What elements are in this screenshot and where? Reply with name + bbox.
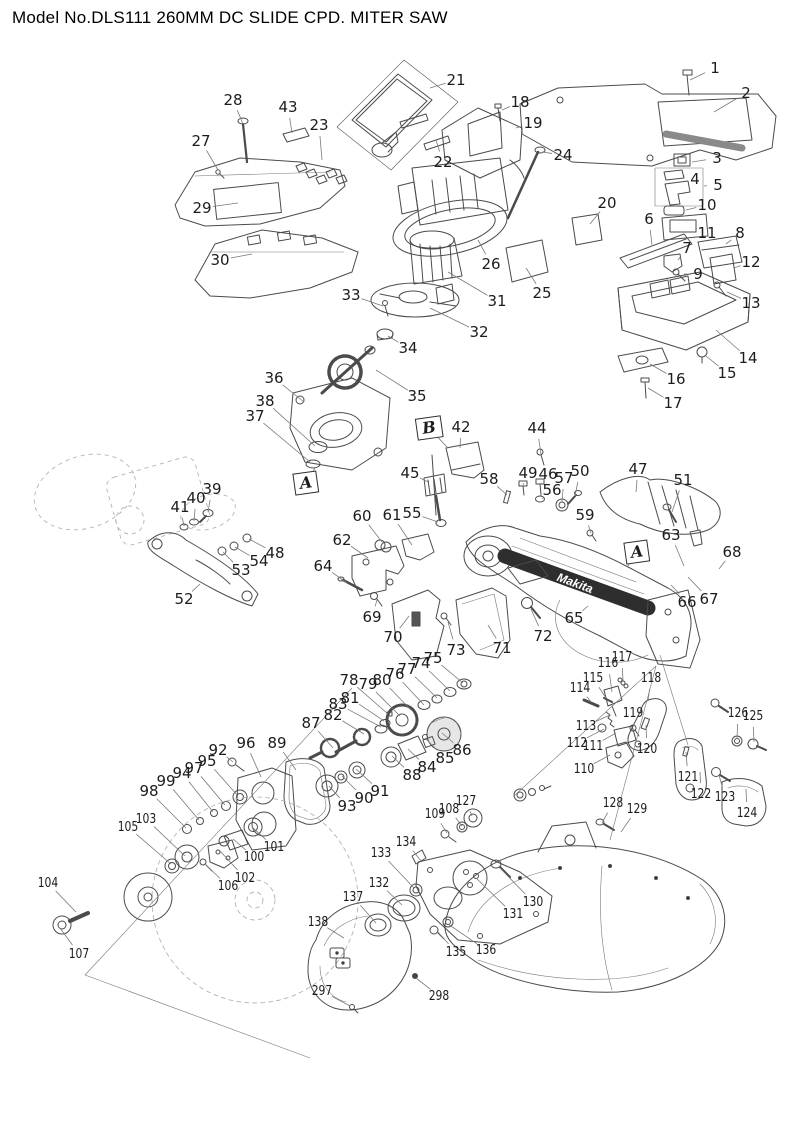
part-callout-113: 113 (576, 718, 597, 734)
art-mid-fastener-group (424, 442, 720, 546)
part-callout-59: 59 (575, 506, 594, 524)
art-gear-train-group (310, 679, 471, 797)
part-callout-65: 65 (564, 609, 583, 627)
part-callout-48: 48 (265, 544, 284, 562)
part-callout-72: 72 (533, 627, 552, 645)
part-callout-136: 136 (476, 942, 497, 958)
part-callout-46: 46 (538, 465, 557, 483)
part-callout-110: 110 (574, 761, 595, 777)
part-callout-26: 26 (481, 255, 500, 273)
part-callout-47: 47 (628, 460, 647, 478)
part-callout-45: 45 (400, 464, 419, 482)
part-callout-58: 58 (479, 470, 498, 488)
part-callout-119: 119 (623, 705, 644, 721)
part-callout-8: 8 (735, 224, 745, 242)
part-callout-86: 86 (452, 741, 471, 759)
part-callout-96: 96 (236, 734, 255, 752)
part-callout-74: 74 (411, 654, 430, 672)
part-callout-53: 53 (231, 561, 250, 579)
exploded-drawing-artwork: Makita (0, 0, 800, 1131)
art-blade-guard-group (308, 786, 725, 1014)
part-callout-1: 1 (710, 59, 720, 77)
part-callout-106: 106 (218, 878, 239, 894)
part-callout-56: 56 (542, 481, 561, 499)
part-callout-50: 50 (570, 462, 589, 480)
part-callout-66: 66 (677, 593, 696, 611)
part-callout-114: 114 (570, 680, 591, 696)
part-callout-27: 27 (191, 132, 210, 150)
art-ghost-motor (24, 442, 239, 548)
part-callout-3: 3 (712, 149, 722, 167)
part-callout-35: 35 (407, 387, 426, 405)
part-callout-40: 40 (186, 489, 205, 507)
part-callout-134: 134 (396, 834, 417, 850)
part-callout-24: 24 (553, 146, 572, 164)
part-callout-122: 122 (691, 786, 712, 802)
part-callout-5: 5 (713, 176, 723, 194)
part-callout-70: 70 (383, 628, 402, 646)
part-callout-101: 101 (264, 839, 285, 855)
callout-leader-lines (0, 0, 800, 1131)
part-callout-12: 12 (741, 253, 760, 271)
part-callout-98: 98 (139, 782, 158, 800)
part-callout-44: 44 (527, 419, 546, 437)
part-callout-57: 57 (554, 469, 573, 487)
part-callout-67: 67 (699, 590, 718, 608)
part-callout-9: 9 (693, 265, 703, 283)
page-title: Model No.DLS111 260MM DC SLIDE CPD. MITE… (12, 8, 448, 28)
part-callout-95: 95 (197, 752, 216, 770)
part-callout-121: 121 (678, 769, 699, 785)
part-callout-52: 52 (174, 590, 193, 608)
part-callout-135: 135 (446, 944, 467, 960)
part-callout-79: 79 (358, 675, 377, 693)
part-callout-25: 25 (532, 284, 551, 302)
art-construction-lines (85, 655, 688, 1058)
part-callout-77: 77 (397, 660, 416, 678)
brand-logo-text: Makita (555, 570, 595, 596)
art-blade-case-group (53, 758, 358, 1003)
art-top-cover-group (520, 70, 776, 398)
part-callout-88: 88 (402, 766, 421, 784)
part-callout-73: 73 (446, 641, 465, 659)
part-callout-69: 69 (362, 608, 381, 626)
part-callout-32: 32 (469, 323, 488, 341)
art-handle-group (175, 118, 358, 298)
part-callout-13: 13 (741, 294, 760, 312)
part-callout-61: 61 (382, 506, 401, 524)
part-callout-298: 298 (429, 988, 450, 1004)
part-callout-17: 17 (663, 394, 682, 412)
part-callout-138: 138 (308, 914, 329, 930)
part-callout-38: 38 (255, 392, 274, 410)
part-callout-21: 21 (446, 71, 465, 89)
part-callout-104: 104 (38, 875, 59, 891)
part-callout-68: 68 (722, 543, 741, 561)
part-callout-78: 78 (339, 671, 358, 689)
part-callout-105: 105 (118, 819, 139, 835)
part-callout-130: 130 (523, 894, 544, 910)
part-callout-16: 16 (666, 370, 685, 388)
part-callout-93: 93 (337, 797, 356, 815)
part-callout-29: 29 (192, 199, 211, 217)
part-callout-108: 108 (439, 801, 460, 817)
part-callout-41: 41 (170, 498, 189, 516)
part-callout-128: 128 (603, 795, 624, 811)
part-callout-111: 111 (583, 738, 604, 754)
part-callout-75: 75 (423, 649, 442, 667)
part-callout-15: 15 (717, 364, 736, 382)
part-callout-107: 107 (69, 946, 90, 962)
part-callout-100: 100 (244, 849, 265, 865)
part-callout-120: 120 (637, 741, 658, 757)
part-callout-131: 131 (503, 906, 524, 922)
part-callout-2: 2 (741, 84, 751, 102)
part-callout-127: 127 (456, 793, 477, 809)
part-callout-132: 132 (369, 875, 390, 891)
art-link-arm-group (148, 510, 258, 607)
part-callout-82: 82 (323, 706, 342, 724)
part-callout-31: 31 (487, 292, 506, 310)
part-callout-297: 297 (312, 983, 333, 999)
part-callout-43: 43 (278, 98, 297, 116)
part-callout-60: 60 (352, 507, 371, 525)
part-callout-36: 36 (264, 369, 283, 387)
part-callout-39: 39 (202, 480, 221, 498)
part-callout-133: 133 (371, 845, 392, 861)
part-callout-118: 118 (641, 670, 662, 686)
part-callout-90: 90 (354, 789, 373, 807)
part-callout-116: 116 (598, 655, 619, 671)
view-ref-A: A (623, 539, 650, 564)
part-callout-51: 51 (673, 471, 692, 489)
part-callout-112: 112 (567, 735, 588, 751)
part-callout-99: 99 (156, 772, 175, 790)
part-callout-37: 37 (245, 407, 264, 425)
part-callout-23: 23 (309, 116, 328, 134)
art-linkage-group (584, 678, 766, 826)
callout-layer: 1234567891011121314151617181920212223242… (0, 0, 800, 1131)
part-callout-124: 124 (737, 805, 758, 821)
art-motor-housing-group (290, 60, 548, 470)
art-main-arm-group: Makita (464, 526, 700, 668)
art-bracket-group (338, 534, 540, 660)
part-callout-137: 137 (343, 889, 364, 905)
part-callout-89: 89 (267, 734, 286, 752)
view-ref-B: B (415, 415, 443, 440)
part-callout-33: 33 (341, 286, 360, 304)
part-callout-76: 76 (385, 665, 404, 683)
part-callout-92: 92 (208, 741, 227, 759)
part-callout-71: 71 (492, 639, 511, 657)
parts-diagram-page: Model No.DLS111 260MM DC SLIDE CPD. MITE… (0, 0, 800, 1131)
part-callout-117: 117 (612, 649, 633, 665)
part-callout-62: 62 (332, 531, 351, 549)
part-callout-18: 18 (510, 93, 529, 111)
part-callout-64: 64 (313, 557, 332, 575)
part-callout-4: 4 (690, 170, 700, 188)
part-callout-49: 49 (518, 464, 537, 482)
part-callout-102: 102 (235, 870, 256, 886)
part-callout-22: 22 (433, 153, 452, 171)
part-callout-63: 63 (661, 526, 680, 544)
part-callout-19: 19 (523, 114, 542, 132)
part-callout-55: 55 (402, 504, 421, 522)
part-callout-91: 91 (370, 782, 389, 800)
part-callout-7: 7 (682, 239, 692, 257)
part-callout-97: 97 (184, 759, 203, 777)
part-callout-28: 28 (223, 91, 242, 109)
part-callout-10: 10 (697, 196, 716, 214)
part-callout-6: 6 (644, 210, 654, 228)
part-callout-85: 85 (435, 749, 454, 767)
part-callout-54: 54 (249, 552, 268, 570)
part-callout-87: 87 (301, 714, 320, 732)
part-callout-84: 84 (417, 758, 436, 776)
part-callout-11: 11 (697, 224, 716, 242)
part-callout-34: 34 (398, 339, 417, 357)
part-callout-123: 123 (715, 789, 736, 805)
part-callout-83: 83 (328, 695, 347, 713)
part-callout-103: 103 (136, 811, 157, 827)
part-callout-80: 80 (372, 671, 391, 689)
part-callout-30: 30 (210, 251, 229, 269)
part-callout-109: 109 (425, 806, 446, 822)
part-callout-14: 14 (738, 349, 757, 367)
part-callout-42: 42 (451, 418, 470, 436)
part-callout-125: 125 (743, 708, 764, 724)
part-callout-94: 94 (172, 764, 191, 782)
part-callout-20: 20 (597, 194, 616, 212)
part-callout-81: 81 (340, 689, 359, 707)
part-callout-129: 129 (627, 801, 648, 817)
part-callout-126: 126 (728, 705, 749, 721)
part-callout-115: 115 (583, 670, 604, 686)
view-ref-A: A (292, 470, 319, 495)
